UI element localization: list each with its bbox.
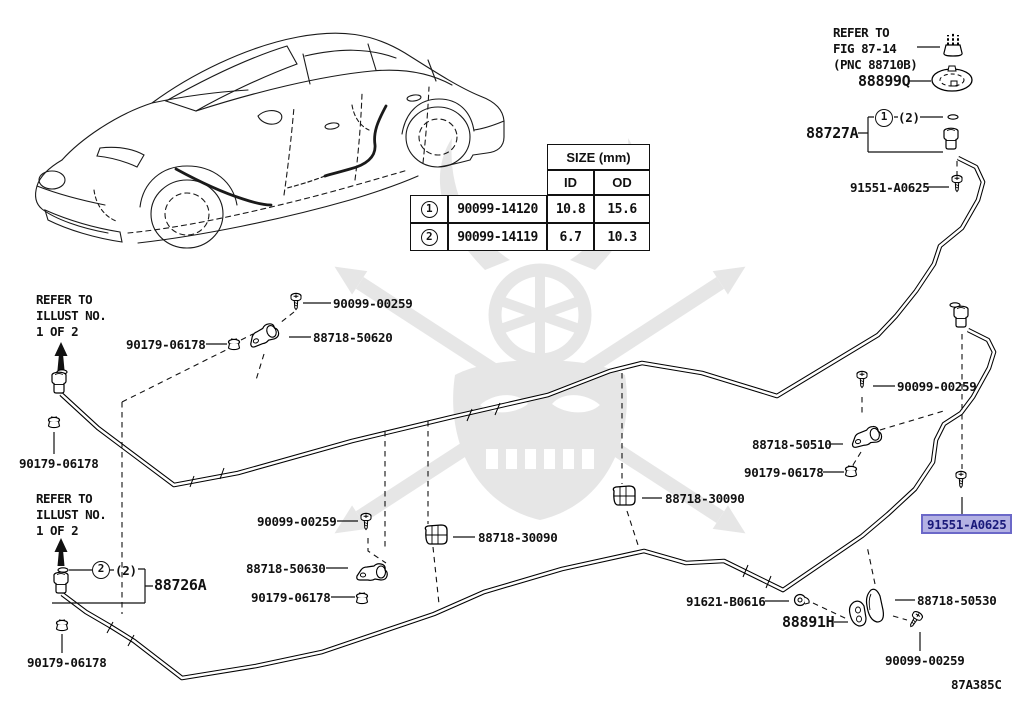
parts-diagram-canvas — [0, 0, 1024, 707]
part-label-90179-06178-front-upper: 90179-06178 — [19, 457, 98, 470]
part-label-88718-50530: 88718-50530 — [917, 594, 996, 607]
grommet-icon — [846, 466, 857, 477]
part-label-90099-00259-bottom: 90099-00259 — [885, 654, 964, 667]
part-label-90099-00259-mid: 90099-00259 — [257, 515, 336, 528]
parts-diagram-page: REFER TO FIG 87-14 (PNC 88710B) 88899Q 8… — [0, 0, 1024, 707]
part-label-90099-00259-upper: 90099-00259 — [333, 297, 412, 310]
washer-nozzle-icon — [850, 589, 884, 626]
callout-2-badge: 2 — [92, 561, 110, 579]
screw-icon — [291, 293, 301, 309]
hose-connector-icon — [954, 306, 968, 327]
screw-icon — [907, 610, 924, 629]
part-label-88899q: 88899Q — [858, 74, 910, 89]
grommet-pnc-icon — [944, 33, 962, 56]
grommet-icon — [229, 339, 240, 350]
clamp-bracket-icon — [357, 564, 387, 581]
grommet-icon — [357, 593, 368, 604]
callout-1-badge: 1 — [875, 109, 893, 127]
part-label-88726a: 88726A — [154, 578, 206, 593]
refer-arrow-icon — [55, 538, 68, 566]
refer-arrow-icon — [55, 342, 68, 370]
part-label-88718-50510: 88718-50510 — [752, 438, 831, 451]
part-label-91551-a0625-highlighted[interactable]: 91551-A0625 — [921, 514, 1012, 534]
size-table-row2-num: 2 — [410, 223, 448, 251]
size-table-row1-od: 15.6 — [594, 195, 650, 223]
callout-2-badge: 2 — [421, 229, 438, 246]
part-label-90179-06178-front-lower: 90179-06178 — [27, 656, 106, 669]
size-table-title: SIZE (mm) — [547, 144, 650, 170]
size-table-row2-id: 6.7 — [547, 223, 594, 251]
screw-icon — [857, 371, 867, 387]
part-label-88718-50630: 88718-50630 — [246, 562, 325, 575]
seal-ring-icon — [948, 115, 958, 119]
hose-connector-icon — [54, 572, 68, 593]
hose-connector-icon — [52, 372, 66, 393]
part-label-90099-00259-right: 90099-00259 — [897, 380, 976, 393]
size-table-col-id: ID — [547, 170, 594, 195]
grommet-icon — [57, 620, 68, 631]
size-table-row1-part: 90099-14120 — [448, 195, 547, 223]
part-label-91551-a0625-top: 91551-A0625 — [850, 181, 929, 194]
size-table-row1-id: 10.8 — [547, 195, 594, 223]
clamp-bracket-icon — [849, 425, 883, 448]
part-label-90179-06178-upper: 90179-06178 — [126, 338, 205, 351]
washer-hose-route-bold — [325, 106, 386, 176]
screw-icon — [956, 471, 966, 487]
part-label-88727a: 88727A — [806, 126, 858, 141]
refer-fig-note: REFER TO FIG 87-14 (PNC 88710B) — [833, 25, 917, 73]
size-table-row2-od: 10.3 — [594, 223, 650, 251]
part-label-88718-30090-b: 88718-30090 — [665, 492, 744, 505]
hose-connector-icon — [944, 128, 958, 149]
hose-clip-icon — [425, 525, 447, 544]
part-label-90179-06178-mid: 90179-06178 — [251, 591, 330, 604]
size-table-row2-part: 90099-14119 — [448, 223, 547, 251]
size-table-row1-num: 1 — [410, 195, 448, 223]
hose-clip-icon — [613, 486, 635, 505]
callout-1-qty: (2) — [898, 111, 920, 124]
callout-2-qty: (2) — [115, 564, 137, 577]
clip-b0616-icon — [795, 595, 810, 606]
screw-icon — [952, 175, 962, 191]
refer-illust-note-2: REFER TO ILLUST NO. 1 OF 2 — [36, 491, 106, 539]
part-label-88891h: 88891H — [782, 615, 834, 630]
part-label-90179-06178-right: 90179-06178 — [744, 466, 823, 479]
size-table-col-od: OD — [594, 170, 650, 195]
grommet-icon — [49, 417, 60, 428]
size-table: SIZE (mm) ID OD 1 90099-14120 10.8 15.6 … — [410, 144, 650, 251]
callout-1-badge: 1 — [421, 201, 438, 218]
part-label-88718-30090-a: 88718-30090 — [478, 531, 557, 544]
part-label-88718-50620: 88718-50620 — [313, 331, 392, 344]
part-label-91621-b0616: 91621-B0616 — [686, 595, 765, 608]
seal-ring-icon — [58, 568, 68, 572]
cap-88899q-icon — [932, 66, 972, 91]
diagram-code: 87A385C — [951, 678, 1002, 691]
refer-illust-note-1: REFER TO ILLUST NO. 1 OF 2 — [36, 292, 106, 340]
